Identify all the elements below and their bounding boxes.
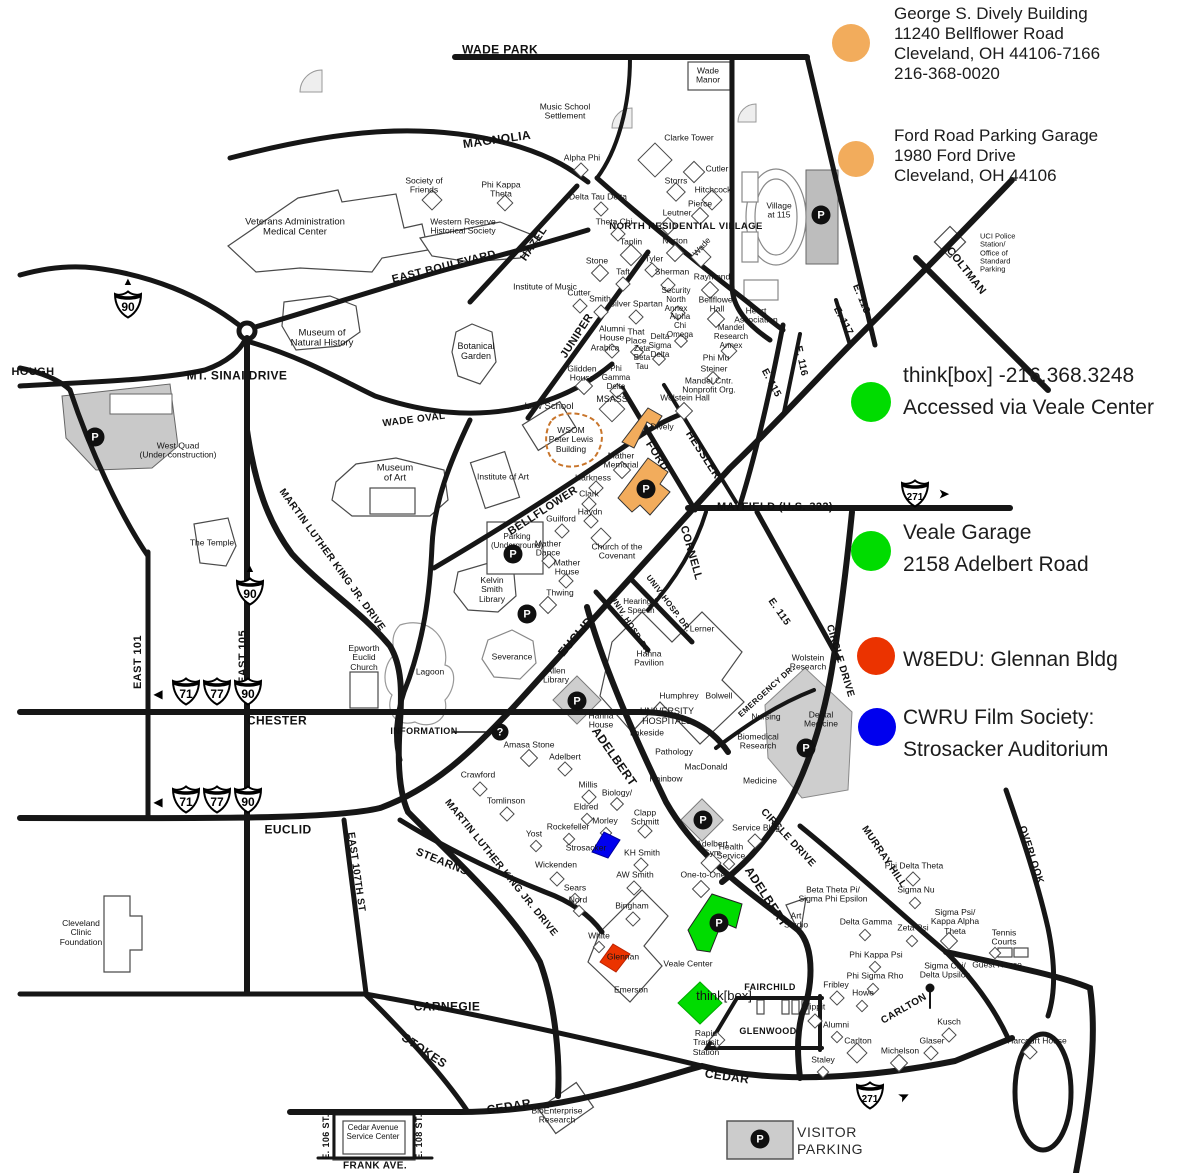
building-outline — [653, 353, 666, 366]
building-outline — [582, 790, 596, 804]
building-outline — [631, 346, 644, 359]
glennan-marker-red — [600, 944, 630, 972]
building-outline — [584, 514, 598, 528]
building-outline — [831, 1031, 842, 1042]
village-building — [744, 280, 778, 300]
building-outline — [473, 782, 487, 796]
building-outline — [942, 1028, 956, 1042]
road-carnegie — [20, 994, 702, 1066]
west-quad-building — [110, 394, 172, 414]
glenwood-building — [757, 1000, 764, 1014]
dental-area — [765, 668, 852, 798]
village-building — [742, 232, 758, 262]
building-outline — [671, 306, 685, 320]
building-outline — [559, 574, 573, 588]
road-overlook — [1006, 790, 1054, 1016]
building-outline — [599, 396, 624, 421]
building-outline — [542, 554, 556, 568]
thinkbox-marker-green — [678, 982, 722, 1024]
service-center-inner — [343, 1121, 405, 1154]
building-outline — [859, 929, 870, 940]
veale-garage-green — [688, 894, 742, 952]
hanna-house-area — [553, 676, 601, 724]
temple-outline — [194, 518, 236, 566]
road-univ-hosp-dr-1 — [596, 592, 648, 650]
epworth-outline — [350, 672, 378, 708]
building-outline — [909, 897, 920, 908]
building-outline — [540, 597, 557, 614]
building-outline — [558, 762, 572, 776]
building-outline — [626, 912, 640, 926]
severance-outline — [482, 630, 536, 679]
village-garage — [806, 170, 838, 264]
building-outline — [611, 798, 624, 811]
glenwood-building — [792, 1000, 799, 1014]
building-outline — [869, 961, 880, 972]
university-hospitals-outline — [600, 612, 744, 744]
building-outline — [594, 202, 608, 216]
stadium-track — [755, 179, 797, 255]
museum-of-art-wing — [370, 488, 415, 514]
building-outline — [661, 278, 675, 292]
building-outline — [707, 372, 720, 385]
va-medical-center-outline — [228, 190, 428, 272]
tennis-court — [1014, 948, 1028, 957]
building-outline — [683, 161, 704, 182]
road-coltman — [916, 258, 1048, 390]
wade-manor-box — [688, 62, 730, 90]
building-outline — [702, 282, 719, 299]
building-outline — [530, 840, 541, 851]
building-outline — [856, 1000, 867, 1011]
building-outline — [550, 872, 564, 886]
building-outline — [638, 824, 652, 838]
building-outline — [675, 335, 688, 348]
building-outline — [634, 858, 648, 872]
building-outline — [645, 263, 659, 277]
building-outline — [589, 481, 603, 495]
building-outline — [614, 462, 631, 479]
road-hessler — [664, 385, 736, 502]
building-outline — [582, 497, 596, 511]
building-outline — [592, 265, 609, 282]
campus-map: VISITOR PARKING WADE PARKMAGNOLIAHAZELEA… — [0, 0, 1200, 1173]
road-euclid — [20, 180, 1012, 818]
building-outline — [497, 195, 513, 211]
road-east-107th — [344, 820, 366, 993]
strosacker-marker-blue — [592, 832, 620, 858]
road-magnolia — [230, 131, 588, 182]
law-school-outline — [522, 402, 575, 451]
flag-dot — [926, 984, 934, 992]
village-building — [742, 172, 758, 202]
building-outline — [667, 183, 685, 201]
road-e115-north — [740, 325, 783, 505]
botanical-garden-outline — [452, 324, 496, 384]
building-outline — [581, 813, 592, 824]
building-outline — [830, 991, 844, 1005]
building-outline — [721, 343, 737, 359]
road-e115-south — [757, 512, 838, 658]
building-outline — [723, 858, 734, 869]
road-cedar — [290, 1038, 1012, 1112]
building-outline — [500, 807, 514, 821]
building-outline — [906, 872, 920, 886]
building-outline — [692, 208, 709, 225]
building-outline — [867, 983, 878, 994]
glenwood-building — [782, 1000, 789, 1014]
building-outline — [591, 528, 611, 548]
cleveland-clinic-outline — [104, 896, 142, 972]
road-chester — [20, 712, 728, 752]
institute-of-art-outline — [470, 452, 519, 509]
ballfield-icon — [738, 104, 756, 122]
building-outline — [702, 190, 722, 210]
building-outline — [638, 143, 672, 177]
building-outline — [691, 247, 711, 267]
building-outline — [906, 935, 917, 946]
road-juniper — [528, 252, 648, 418]
building-outline — [693, 881, 710, 898]
roads — [20, 57, 1093, 1173]
map-graphics — [0, 0, 1200, 1173]
building-outline — [611, 227, 625, 241]
bioenterprise-outline — [539, 1083, 594, 1134]
building-outline — [563, 833, 574, 844]
building-outline — [521, 750, 538, 767]
road-murray-hill — [800, 826, 1008, 1038]
museum-natural-history-outline — [282, 296, 360, 350]
building-outline — [629, 310, 643, 324]
building-outline — [605, 344, 619, 358]
ballfield-icon — [300, 70, 322, 92]
building-outline — [924, 1046, 938, 1060]
building-outline — [847, 1043, 867, 1063]
building-outline — [573, 299, 587, 313]
road-e117 — [836, 300, 850, 345]
road-ramp-west — [20, 267, 239, 325]
building-outline — [422, 190, 442, 210]
road-univ-hosp-dr-2 — [630, 578, 692, 642]
road-wade-park-connector — [597, 58, 630, 178]
building-outline — [708, 311, 725, 328]
visitor-parking-swatch — [727, 1121, 793, 1159]
building-outline — [709, 1032, 725, 1048]
building-outline — [555, 524, 569, 538]
